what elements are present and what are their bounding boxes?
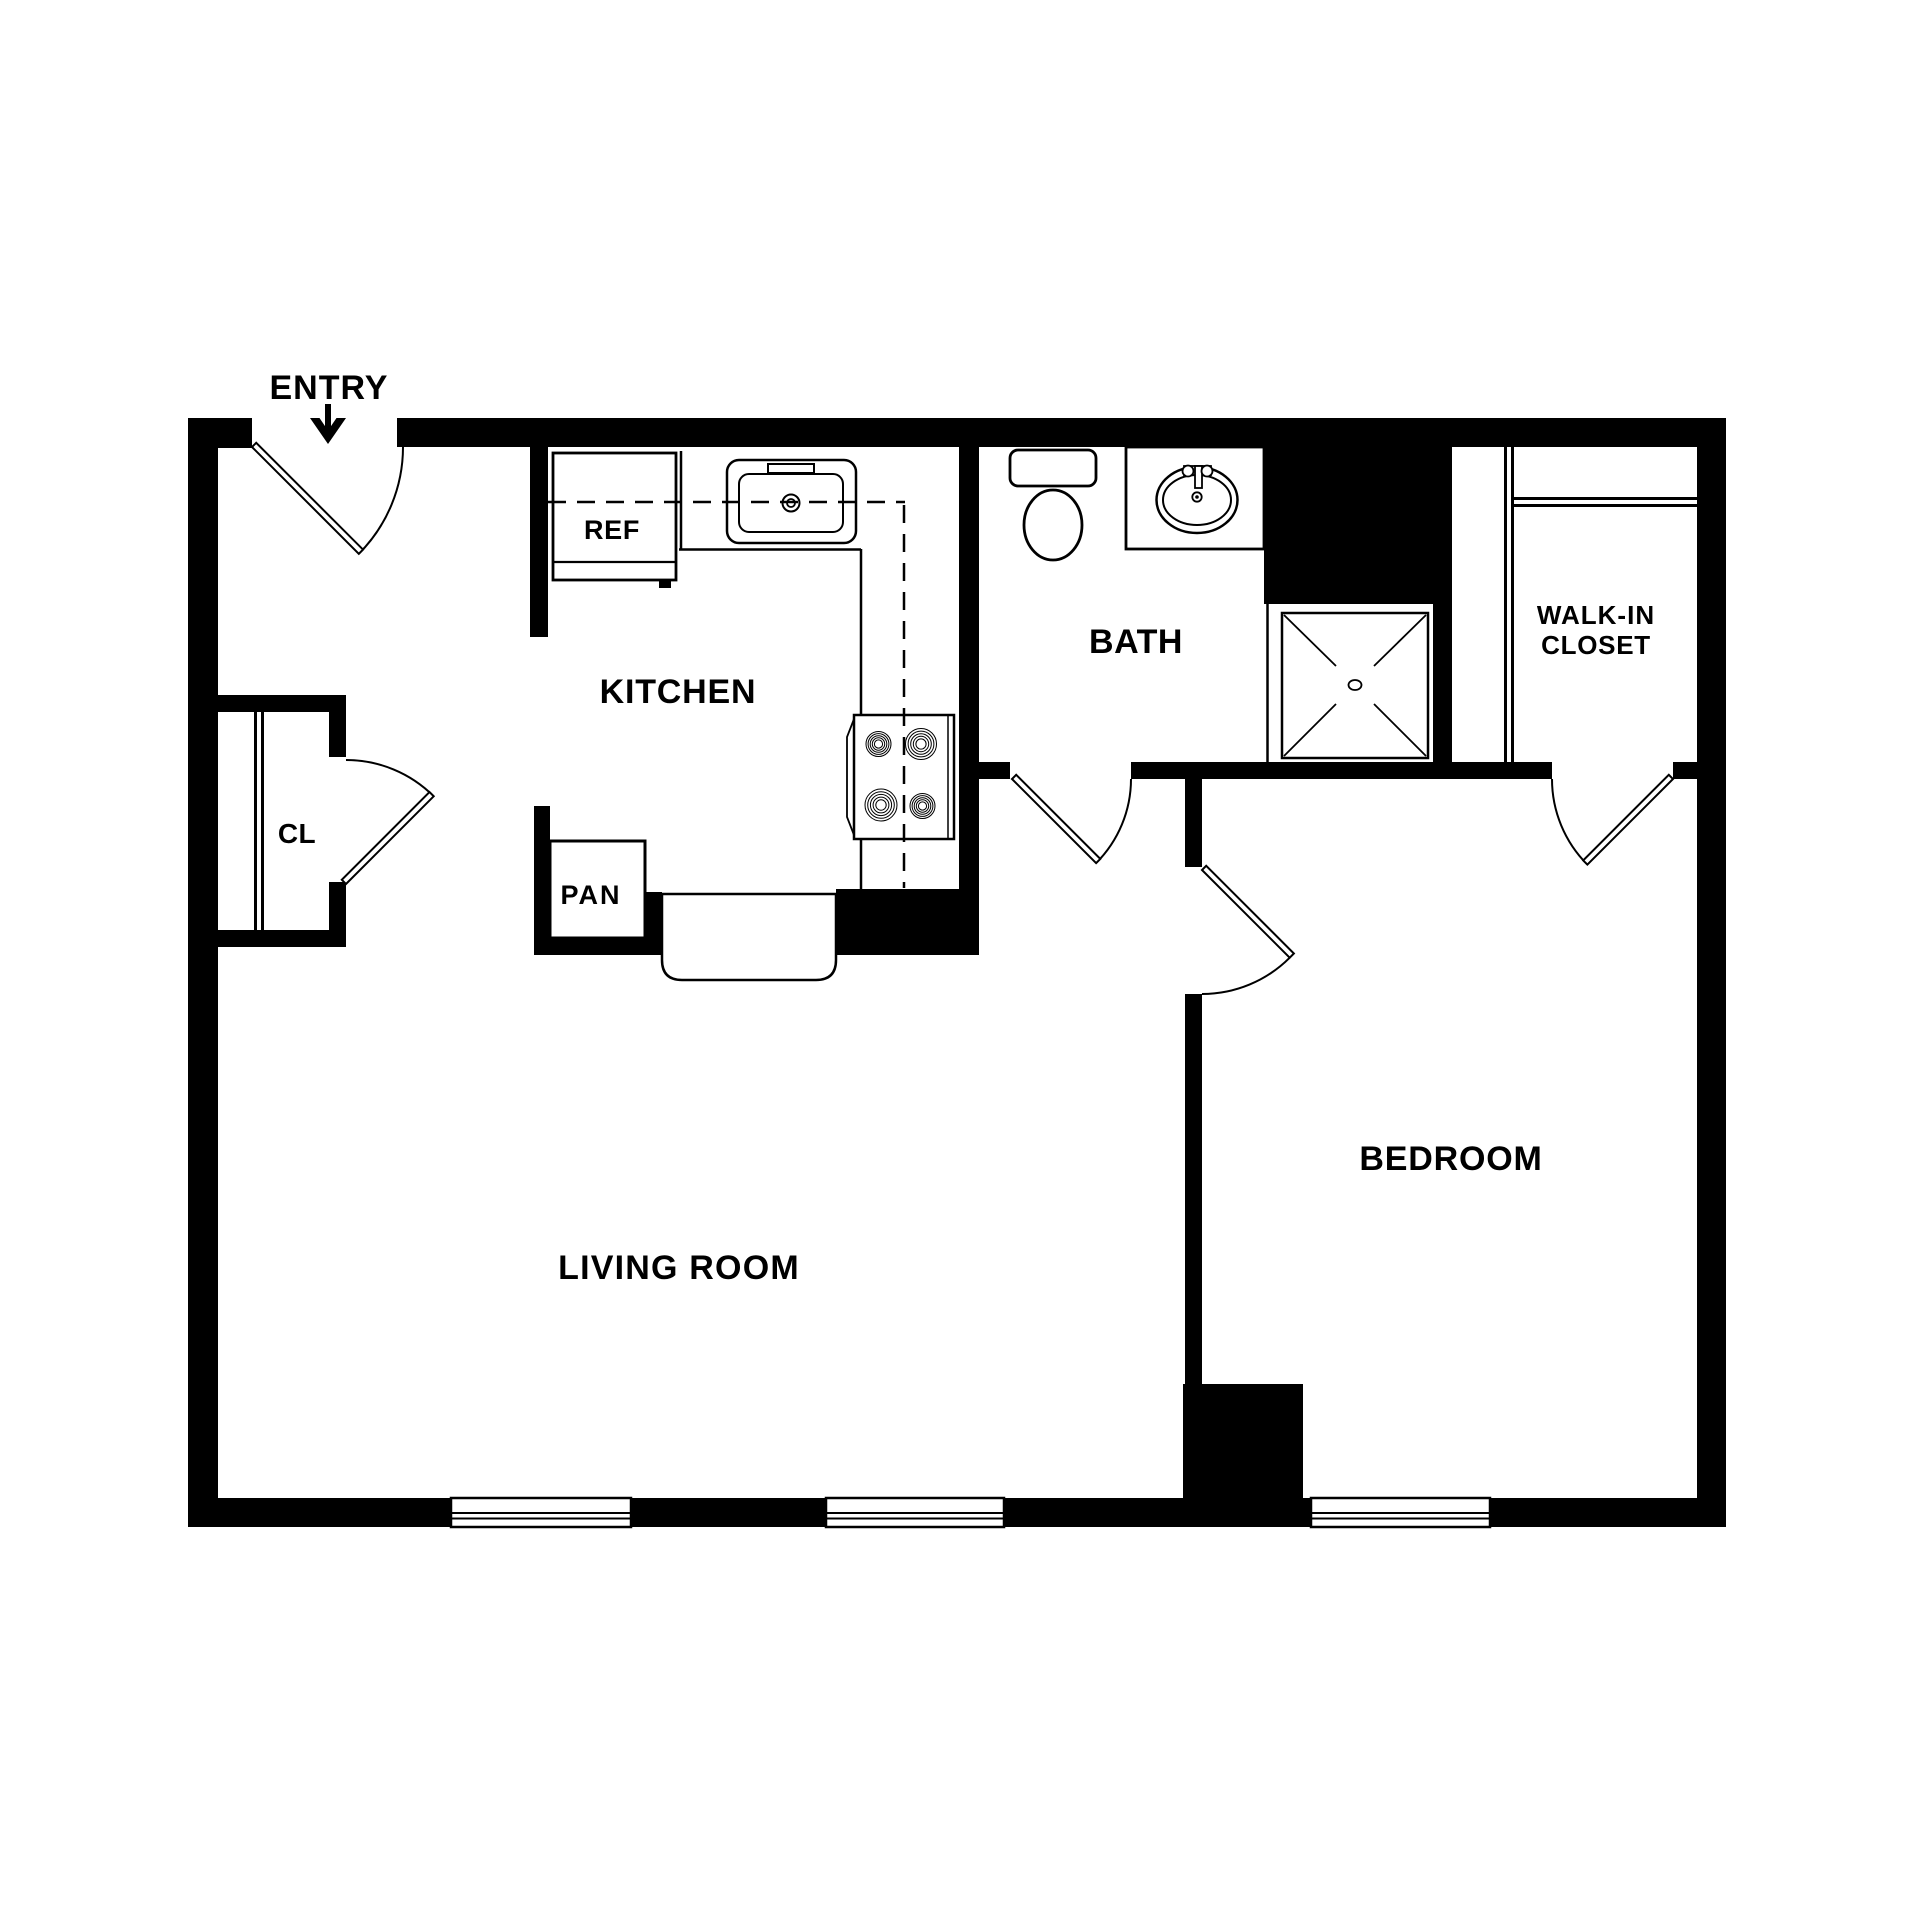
svg-text:WALK-IN: WALK-IN [1537,600,1655,630]
svg-text:KITCHEN: KITCHEN [600,673,757,711]
svg-text:LIVING ROOM: LIVING ROOM [558,1249,800,1287]
svg-text:PAN: PAN [560,880,621,910]
svg-text:BEDROOM: BEDROOM [1359,1140,1542,1178]
svg-text:BATH: BATH [1089,623,1183,661]
svg-text:ENTRY: ENTRY [270,369,389,407]
svg-text:REF: REF [584,515,640,545]
svg-text:CL: CL [278,818,316,849]
svg-text:CLOSET: CLOSET [1541,630,1651,660]
